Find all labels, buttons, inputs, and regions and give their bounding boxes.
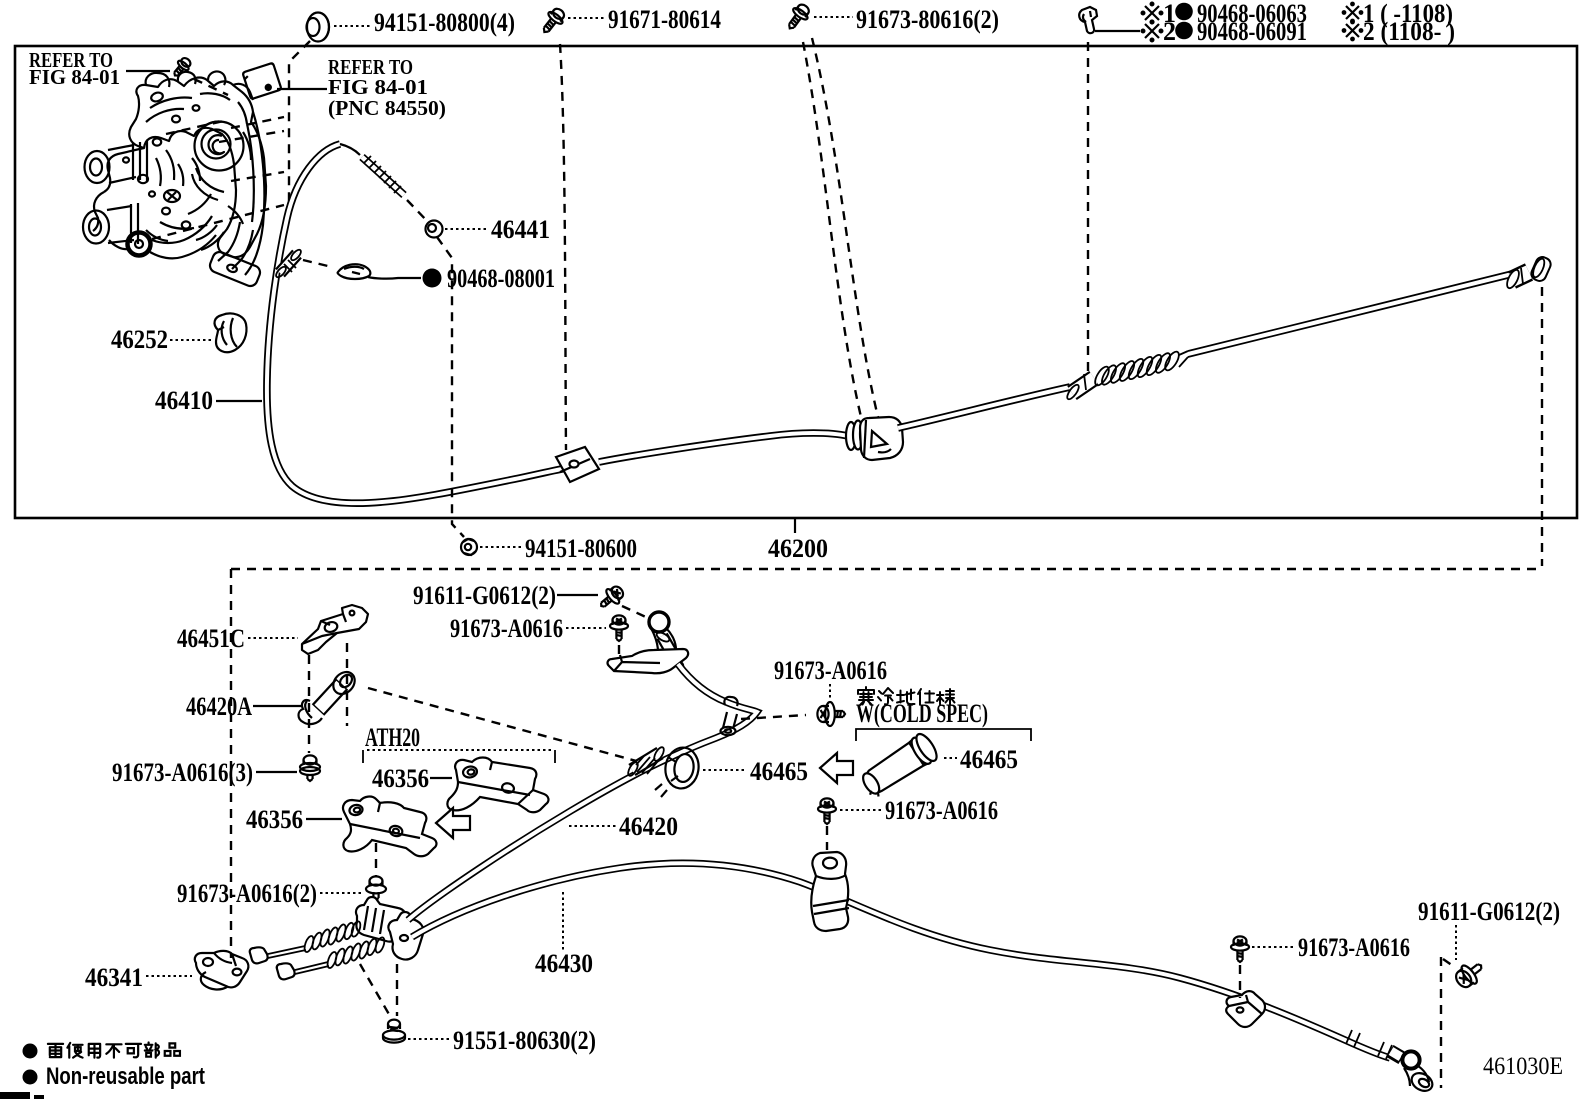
svg-text:91551-80630(2): 91551-80630(2) <box>453 1026 596 1055</box>
svg-text:91671-80614: 91671-80614 <box>608 5 721 34</box>
svg-text:91611-G0612(2): 91611-G0612(2) <box>1418 897 1560 926</box>
svg-text:91673-A0616(2): 91673-A0616(2) <box>177 879 317 908</box>
svg-text:46356: 46356 <box>372 764 429 793</box>
svg-text:46410: 46410 <box>155 386 213 415</box>
svg-text:W(COLD SPEC): W(COLD SPEC) <box>856 699 988 728</box>
svg-text:91673-A0616: 91673-A0616 <box>1298 933 1410 962</box>
svg-text:2 (1108- ): 2 (1108- ) <box>1363 17 1455 46</box>
svg-text:46356: 46356 <box>246 805 303 834</box>
svg-text:2: 2 <box>1163 17 1176 46</box>
svg-text:46451C: 46451C <box>177 624 245 653</box>
svg-text:FIG 84-01: FIG 84-01 <box>29 65 120 89</box>
svg-text:91673-A0616: 91673-A0616 <box>885 796 998 825</box>
svg-text:46252: 46252 <box>111 325 168 354</box>
svg-text:Non-reusable part: Non-reusable part <box>46 1063 205 1090</box>
svg-text:461030E: 461030E <box>1483 1053 1563 1080</box>
svg-text:46420: 46420 <box>619 812 678 841</box>
svg-text:94151-80600: 94151-80600 <box>525 534 637 563</box>
svg-text:46465: 46465 <box>960 745 1018 774</box>
svg-text:(PNC 84550): (PNC 84550) <box>328 96 446 120</box>
svg-text:46341: 46341 <box>85 963 143 992</box>
svg-text:46200: 46200 <box>768 534 828 563</box>
svg-text:91673-A0616: 91673-A0616 <box>774 656 887 685</box>
svg-text:46465: 46465 <box>750 757 808 786</box>
svg-text:46441: 46441 <box>491 215 550 244</box>
svg-text:91673-80616(2): 91673-80616(2) <box>856 5 999 34</box>
svg-text:90468-06091: 90468-06091 <box>1197 17 1307 46</box>
svg-text:ATH20: ATH20 <box>365 723 420 752</box>
svg-text:94151-80800(4): 94151-80800(4) <box>374 8 515 37</box>
svg-text:46420A: 46420A <box>186 692 252 721</box>
svg-text:91673-A0616: 91673-A0616 <box>450 614 563 643</box>
svg-text:91611-G0612(2): 91611-G0612(2) <box>413 581 556 610</box>
svg-text:91673-A0616(3): 91673-A0616(3) <box>112 758 253 787</box>
svg-text:90468-08001: 90468-08001 <box>447 264 555 293</box>
svg-text:46430: 46430 <box>535 949 593 978</box>
